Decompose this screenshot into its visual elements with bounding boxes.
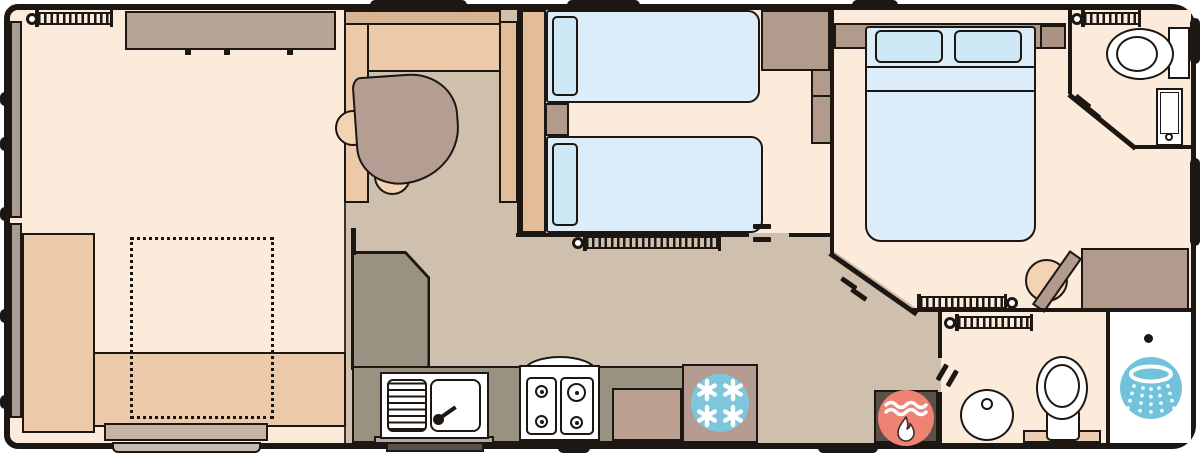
window: [558, 443, 590, 453]
caravan-floor-plan: [0, 0, 1200, 453]
sofa-foot: [185, 50, 191, 55]
basin-inner: [1160, 92, 1179, 134]
sofa-foot: [224, 50, 230, 55]
shelf-line: [813, 95, 830, 97]
kitchen-counter: [354, 254, 428, 368]
kitchen-door-step: [386, 442, 484, 452]
window: [1190, 18, 1200, 64]
basin-tap: [981, 398, 993, 410]
pillow: [954, 30, 1022, 63]
window-latch: [0, 395, 10, 409]
toilet-bowl: [1044, 364, 1080, 408]
sofa-foot: [287, 50, 293, 55]
wall: [517, 10, 522, 237]
wall-sofa: [125, 11, 336, 50]
window: [852, 0, 898, 10]
window: [10, 223, 22, 418]
wall: [1106, 312, 1111, 443]
entrance-step: [112, 442, 261, 453]
burner: [535, 385, 548, 398]
window: [1190, 158, 1200, 246]
basin-tap: [1165, 133, 1173, 141]
window: [10, 21, 22, 218]
burner: [570, 416, 583, 429]
wall: [789, 233, 834, 238]
twin-bed-2: [546, 136, 763, 233]
burner: [535, 415, 548, 428]
shower-icon: [1119, 356, 1183, 420]
radiator-icon: [38, 12, 110, 25]
sink-drainer: [387, 379, 427, 432]
bathroom-basin: [960, 389, 1014, 441]
oven-cupboard: [612, 388, 682, 441]
window-latch: [0, 207, 10, 221]
radiator-icon: [958, 316, 1030, 329]
window: [567, 0, 640, 10]
sheet-fold: [866, 66, 1035, 92]
radiator-icon: [1084, 12, 1138, 25]
twin-bed-1: [546, 10, 760, 103]
burner: [567, 383, 586, 402]
door-hinge: [753, 224, 771, 229]
window-latch: [0, 137, 10, 151]
window: [818, 443, 878, 453]
wall: [351, 228, 356, 255]
bedside-table: [545, 103, 569, 136]
freezer-icon: [690, 373, 750, 433]
corner-sofa-chaise: [22, 233, 95, 433]
shower-drain: [1144, 334, 1153, 343]
dressing-table: [1081, 248, 1189, 311]
radiator-icon: [586, 236, 718, 249]
boiler-icon: [878, 390, 934, 446]
bed-shelf: [521, 10, 546, 233]
window-latch: [0, 309, 10, 323]
window: [370, 0, 467, 10]
divider-unit: [499, 21, 518, 203]
wall: [938, 312, 943, 358]
wall: [1133, 145, 1191, 150]
wall: [1068, 10, 1073, 94]
wall: [938, 392, 943, 443]
sofa-bed-outline: [130, 237, 274, 419]
door-hinge: [753, 237, 771, 242]
pillow: [875, 30, 943, 63]
window-latch: [0, 92, 10, 106]
pillow: [552, 143, 578, 226]
wardrobe: [761, 10, 830, 71]
pillow: [552, 16, 578, 96]
footstool: [104, 423, 268, 441]
wall: [912, 308, 1191, 313]
wall: [830, 10, 835, 255]
bedside-cabinet: [1040, 25, 1066, 49]
toilet-bowl: [1116, 36, 1158, 72]
